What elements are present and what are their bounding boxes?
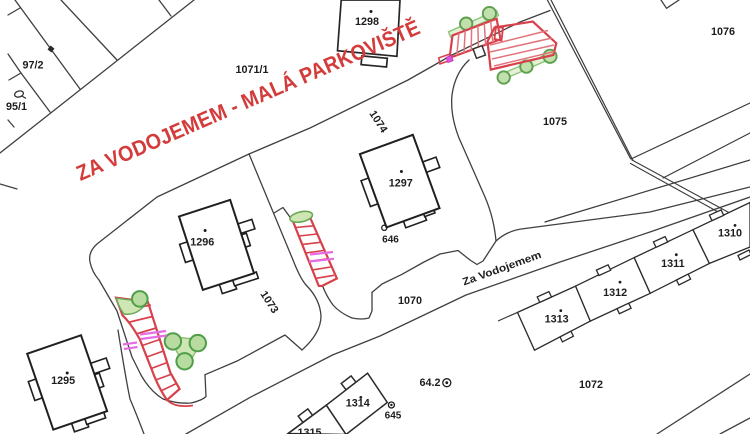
svg-text:1311: 1311 <box>661 258 684 270</box>
svg-text:1298: 1298 <box>355 16 379 28</box>
svg-text:1295: 1295 <box>51 375 75 387</box>
svg-text:1310: 1310 <box>718 227 742 239</box>
svg-text:1315: 1315 <box>297 427 321 434</box>
svg-text:1070: 1070 <box>398 295 422 307</box>
svg-text:95/1: 95/1 <box>6 101 27 113</box>
svg-text:1076: 1076 <box>711 26 735 38</box>
svg-text:1071/1: 1071/1 <box>235 64 268 76</box>
svg-text:1314: 1314 <box>346 398 370 410</box>
svg-text:1297: 1297 <box>389 178 413 190</box>
svg-text:1075: 1075 <box>543 116 567 128</box>
svg-text:97/2: 97/2 <box>22 60 43 72</box>
svg-text:1312: 1312 <box>603 287 627 299</box>
svg-text:645: 645 <box>385 411 402 422</box>
svg-text:1296: 1296 <box>190 237 214 249</box>
svg-text:1313: 1313 <box>545 314 569 326</box>
svg-text:64.2: 64.2 <box>419 377 440 389</box>
svg-text:646: 646 <box>382 235 399 246</box>
svg-text:1072: 1072 <box>579 379 603 391</box>
